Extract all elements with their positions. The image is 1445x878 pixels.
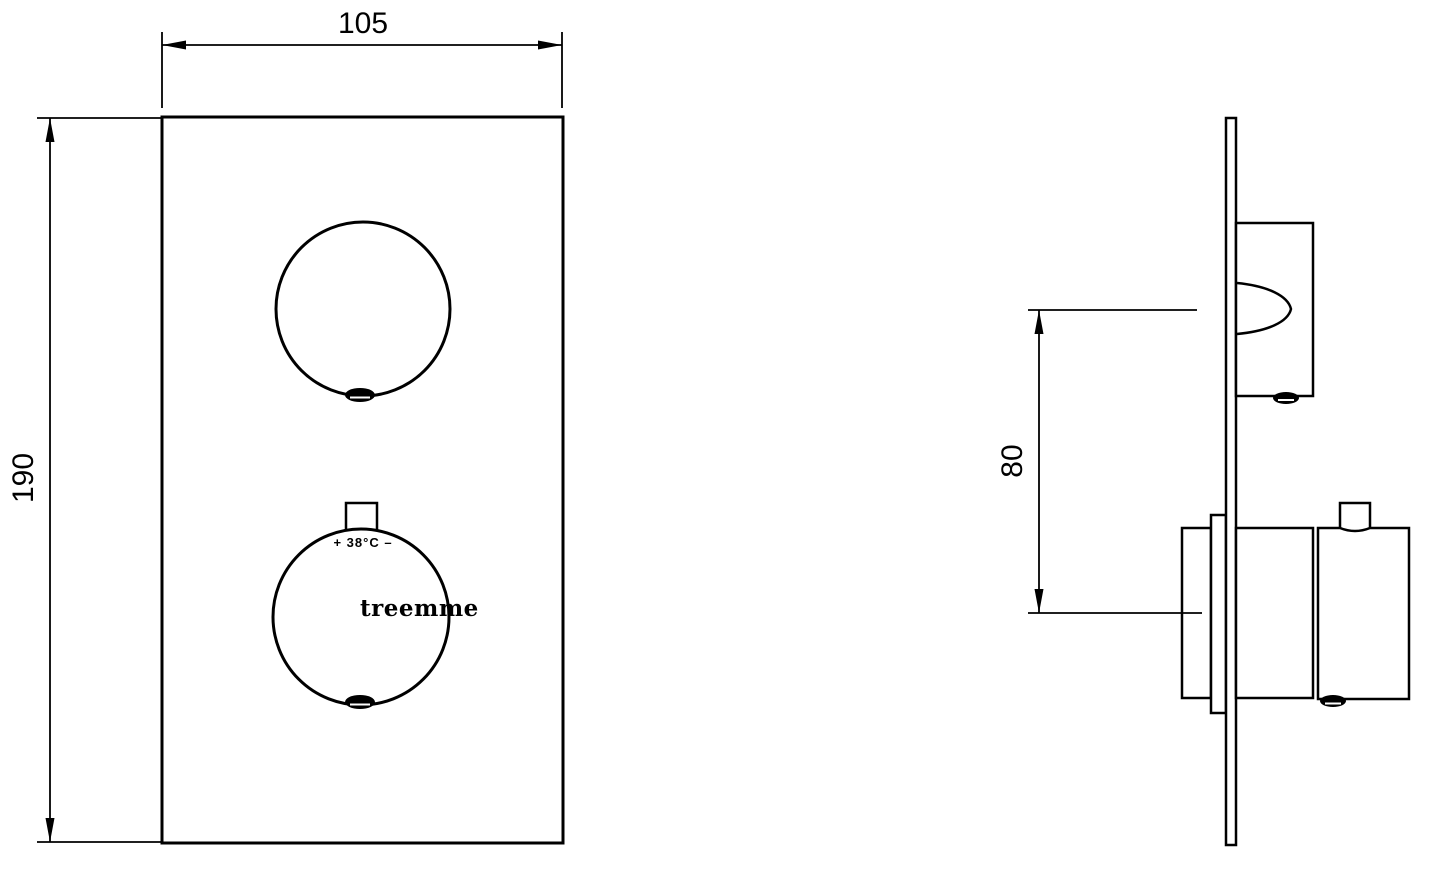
thermostat-base-side bbox=[1236, 528, 1313, 698]
arrowhead-left bbox=[162, 41, 186, 50]
dimension-height: 190 bbox=[7, 118, 161, 842]
diverter-knob-side bbox=[1236, 223, 1313, 396]
brand-logo: treemme bbox=[360, 595, 479, 622]
dimension-width: 105 bbox=[162, 7, 562, 108]
front-view: + 38°C – treemme bbox=[162, 117, 563, 843]
notch-shape bbox=[1273, 392, 1299, 404]
diverter-indicator-notch-side bbox=[1273, 392, 1299, 404]
dimension-handle-spacing: 80 bbox=[996, 310, 1202, 613]
arrowhead-up bbox=[1035, 310, 1044, 334]
height-dimension-value: 190 bbox=[7, 453, 40, 503]
notch-shape bbox=[1320, 695, 1346, 707]
spacing-dimension-value: 80 bbox=[996, 444, 1029, 477]
notch-shape bbox=[345, 695, 375, 709]
safety-button-side bbox=[1340, 503, 1370, 528]
diverter-knob-circle bbox=[276, 222, 450, 396]
arrowhead-down bbox=[46, 818, 55, 842]
notch-shape bbox=[345, 388, 375, 402]
temperature-label: + 38°C – bbox=[333, 535, 392, 550]
technical-drawing-page: + 38°C – treemme bbox=[0, 0, 1445, 878]
mounting-flange-side bbox=[1211, 515, 1226, 713]
arrowhead-down bbox=[1035, 589, 1044, 613]
mixer-technical-drawing: + 38°C – treemme bbox=[0, 0, 1445, 878]
arrowhead-right bbox=[538, 41, 562, 50]
thermostat-indicator-notch-side bbox=[1320, 695, 1346, 707]
wall-plate-side bbox=[1226, 118, 1236, 845]
thermostat-indicator-notch bbox=[345, 695, 375, 709]
diverter-indicator-notch bbox=[345, 388, 375, 402]
thermostat-knob-side bbox=[1318, 528, 1409, 699]
width-dimension-value: 105 bbox=[338, 7, 388, 40]
side-view bbox=[1182, 118, 1409, 845]
arrowhead-up bbox=[46, 118, 55, 142]
